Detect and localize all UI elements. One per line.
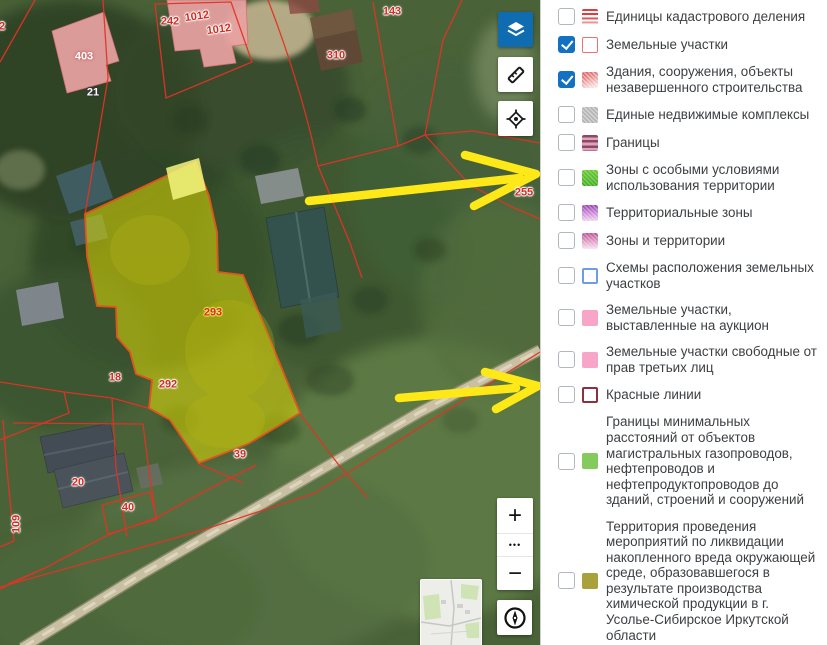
layer-swatch-icon [582,573,598,589]
compass-button[interactable] [497,600,532,635]
layer-checkbox[interactable] [558,572,575,589]
layer-checkbox[interactable] [558,71,575,88]
layer-label: Здания, сооружения, объекты незавершенно… [606,64,819,95]
legend-item: Зоны и территории [558,232,819,249]
layer-swatch-icon [582,387,598,403]
layer-swatch-icon [582,233,598,249]
legend-item: Земельные участки свободные от прав трет… [558,344,819,375]
checkmark-icon [561,37,573,49]
layer-checkbox[interactable] [558,36,575,53]
layer-checkbox[interactable] [558,309,575,326]
layer-label: Зоны и территории [606,233,725,249]
layer-swatch-icon [582,453,598,469]
layer-checkbox[interactable] [558,8,575,25]
legend-item: Схемы расположения земельных участков [558,260,819,291]
layer-label: Земельные участки, выставленные на аукци… [606,302,819,333]
layer-label: Зоны с особыми условиями использования т… [606,162,819,193]
layer-label: Территориальные зоны [606,205,753,221]
layer-checkbox[interactable] [558,351,575,368]
layers-icon [505,19,527,41]
legend-item: Красные линии [558,386,819,403]
legend-item: Территориальные зоны [558,204,819,221]
layer-swatch-icon [582,205,598,221]
layer-label: Единицы кадастрового деления [606,9,805,25]
legend-item: Здания, сооружения, объекты незавершенно… [558,64,819,95]
legend-item: Земельные участки, выставленные на аукци… [558,302,819,333]
checkmark-icon [561,72,573,84]
layer-label: Земельные участки свободные от прав трет… [606,344,819,375]
zoom-in-button[interactable]: + [497,498,533,533]
map-canvas[interactable]: 2403212421012101231014325529318292392040… [0,0,540,645]
zoom-controls: + ••• − [497,498,533,590]
locate-position-button[interactable] [498,101,533,136]
zoom-out-button[interactable]: − [497,557,533,590]
layer-checkbox[interactable] [558,386,575,403]
layer-checkbox[interactable] [558,169,575,186]
satellite-map-image [0,0,540,645]
legend-item: Зоны с особыми условиями использования т… [558,162,819,193]
legend-item: Границы минимальных расстояний от объект… [558,414,819,507]
legend-item: Территория проведения мероприятий по лик… [558,519,819,643]
layer-checkbox[interactable] [558,204,575,221]
position-crosshair-icon [505,108,527,130]
layer-swatch-icon [582,9,598,25]
layers-button[interactable] [498,12,533,47]
cadastral-map-app: 2403212421012101231014325529318292392040… [0,0,827,645]
layer-checkbox[interactable] [558,106,575,123]
more-tools-button[interactable]: ••• [497,533,533,557]
layer-label: Земельные участки [606,37,728,53]
layer-checkbox[interactable] [558,267,575,284]
layer-swatch-icon [582,268,598,284]
legend-item: Единицы кадастрового деления [558,8,819,25]
layer-label: Территория проведения мероприятий по лик… [606,519,819,643]
layers-legend-panel: Единицы кадастрового деления Земельные у… [540,0,827,645]
minimap-image [421,580,481,645]
layer-label: Границы минимальных расстояний от объект… [606,414,819,507]
ruler-icon [505,64,527,86]
layer-label: Единые недвижимые комплексы [606,107,809,123]
layer-checkbox[interactable] [558,134,575,151]
layer-swatch-icon [582,37,598,53]
layer-checkbox[interactable] [558,453,575,470]
layer-label: Красные линии [606,387,701,403]
layer-swatch-icon [582,310,598,326]
layer-swatch-icon [582,135,598,151]
layer-swatch-icon [582,107,598,123]
layer-swatch-icon [582,352,598,368]
legend-item: Земельные участки [558,36,819,53]
overview-minimap[interactable] [420,579,482,645]
legend-item: Границы [558,134,819,151]
compass-icon [502,605,528,631]
layer-label: Схемы расположения земельных участков [606,260,819,291]
layer-checkbox[interactable] [558,232,575,249]
legend-item: Единые недвижимые комплексы [558,106,819,123]
layer-label: Границы [606,135,660,151]
layer-swatch-icon [582,72,598,88]
layer-swatch-icon [582,170,598,186]
measure-button[interactable] [498,57,533,92]
